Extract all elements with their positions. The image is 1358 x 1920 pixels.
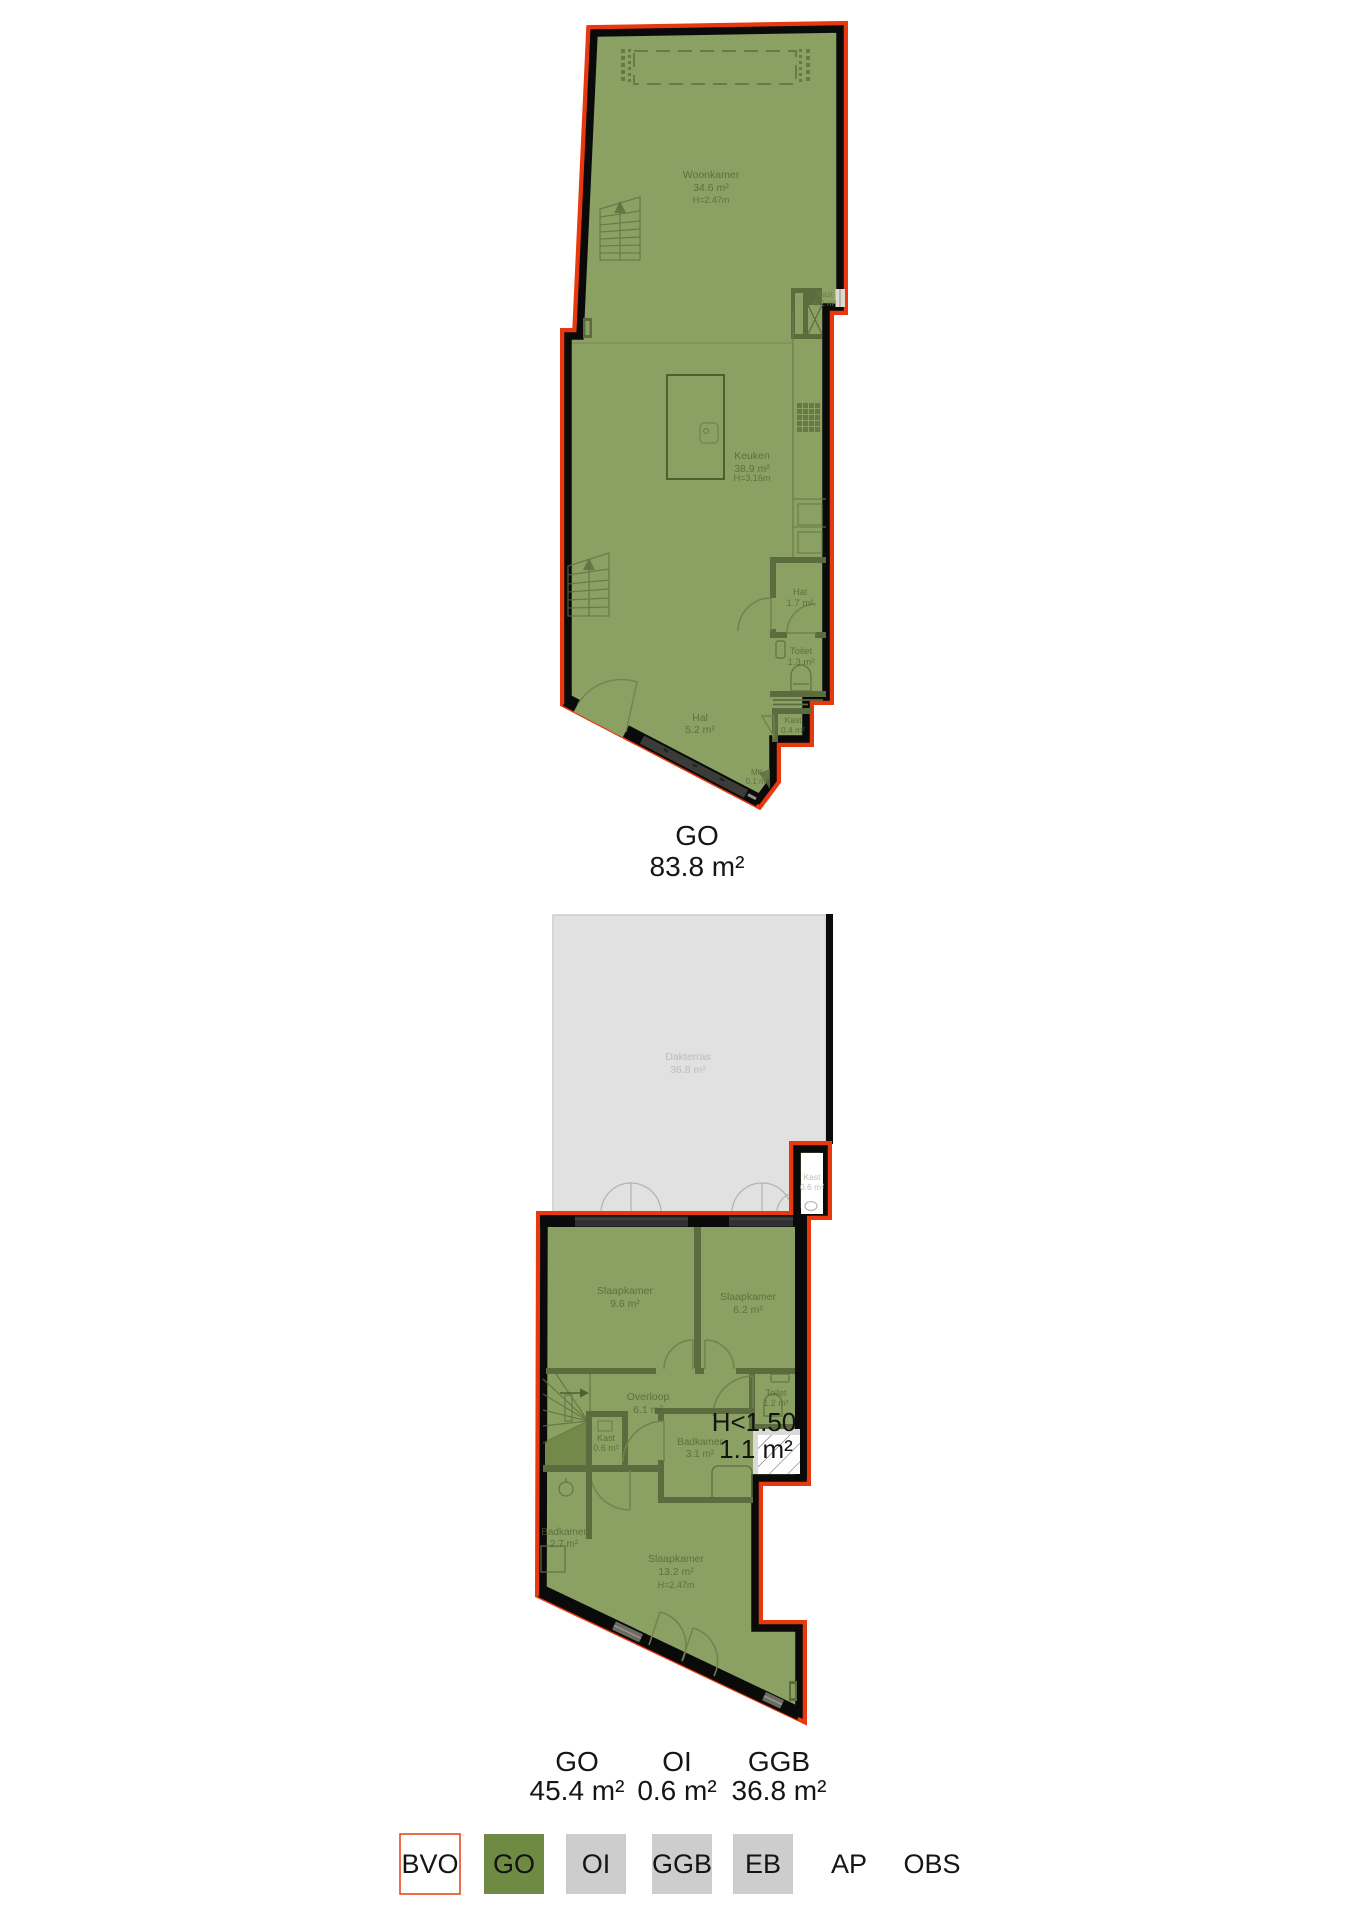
svg-text:34.6 m²: 34.6 m² [693, 182, 729, 194]
svg-text:1.3 m²: 1.3 m² [788, 657, 815, 668]
svg-text:Toilet: Toilet [790, 646, 813, 657]
svg-text:H=2.47m: H=2.47m [693, 195, 730, 205]
svg-text:Hal: Hal [793, 587, 807, 598]
svg-text:Kast: Kast [817, 290, 834, 299]
svg-text:9.6 m²: 9.6 m² [610, 1298, 640, 1310]
svg-text:Hal: Hal [692, 712, 708, 724]
svg-text:Kast: Kast [597, 1433, 616, 1443]
svg-text:GO: GO [493, 1849, 535, 1879]
svg-text:Badkamer: Badkamer [677, 1437, 723, 1448]
svg-text:GGB: GGB [652, 1849, 712, 1879]
svg-text:0.6 m²: 0.6 m² [800, 1182, 824, 1192]
svg-text:36.8 m²: 36.8 m² [670, 1064, 706, 1076]
svg-text:6.2 m²: 6.2 m² [733, 1304, 763, 1316]
svg-text:Slaapkamer: Slaapkamer [648, 1553, 705, 1565]
svg-text:GGB: GGB [748, 1746, 810, 1777]
svg-text:Slaapkamer: Slaapkamer [720, 1291, 777, 1303]
svg-text:5.2 m²: 5.2 m² [685, 724, 715, 736]
svg-text:0.6 m²: 0.6 m² [637, 1775, 716, 1806]
svg-text:Slaapkamer: Slaapkamer [597, 1285, 654, 1297]
svg-text:1.7 m²: 1.7 m² [787, 598, 814, 609]
svg-text:45.4 m²: 45.4 m² [530, 1775, 625, 1806]
svg-text:36.8 m²: 36.8 m² [732, 1775, 827, 1806]
svg-text:13.2 m²: 13.2 m² [658, 1566, 694, 1578]
svg-text:3.1 m²: 3.1 m² [686, 1449, 715, 1460]
svg-text:H<1.50: H<1.50 [712, 1407, 797, 1437]
svg-text:2.7 m²: 2.7 m² [550, 1539, 579, 1550]
svg-text:Kast: Kast [803, 1172, 821, 1182]
svg-text:0.2 m²: 0.2 m² [814, 299, 837, 308]
svg-text:H=2.47m: H=2.47m [658, 1580, 695, 1590]
svg-text:OBS: OBS [903, 1849, 960, 1879]
svg-text:Overloop: Overloop [627, 1391, 670, 1403]
svg-text:EB: EB [745, 1849, 781, 1879]
svg-text:Badkamer: Badkamer [541, 1527, 587, 1538]
svg-text:6.1 m²: 6.1 m² [633, 1404, 663, 1416]
svg-text:AP: AP [831, 1849, 867, 1879]
svg-text:Keuken: Keuken [734, 450, 770, 462]
svg-text:OI: OI [582, 1849, 611, 1879]
svg-text:0.1 m²: 0.1 m² [746, 777, 769, 786]
svg-text:Toilet: Toilet [765, 1388, 787, 1398]
svg-text:MK: MK [751, 768, 764, 777]
svg-text:Kast: Kast [784, 715, 802, 725]
svg-text:GO: GO [675, 820, 719, 851]
svg-text:0.4 m²: 0.4 m² [781, 725, 805, 735]
svg-text:83.8 m²: 83.8 m² [650, 851, 745, 882]
svg-text:Woonkamer: Woonkamer [683, 169, 740, 181]
svg-text:GO: GO [555, 1746, 599, 1777]
svg-text:OI: OI [662, 1746, 692, 1777]
svg-text:BVO: BVO [401, 1849, 458, 1879]
svg-text:1.1 m²: 1.1 m² [719, 1434, 793, 1464]
svg-text:H=3.16m: H=3.16m [734, 473, 771, 483]
svg-text:Dakterras: Dakterras [665, 1051, 711, 1063]
svg-text:0.6 m²: 0.6 m² [593, 1443, 619, 1453]
